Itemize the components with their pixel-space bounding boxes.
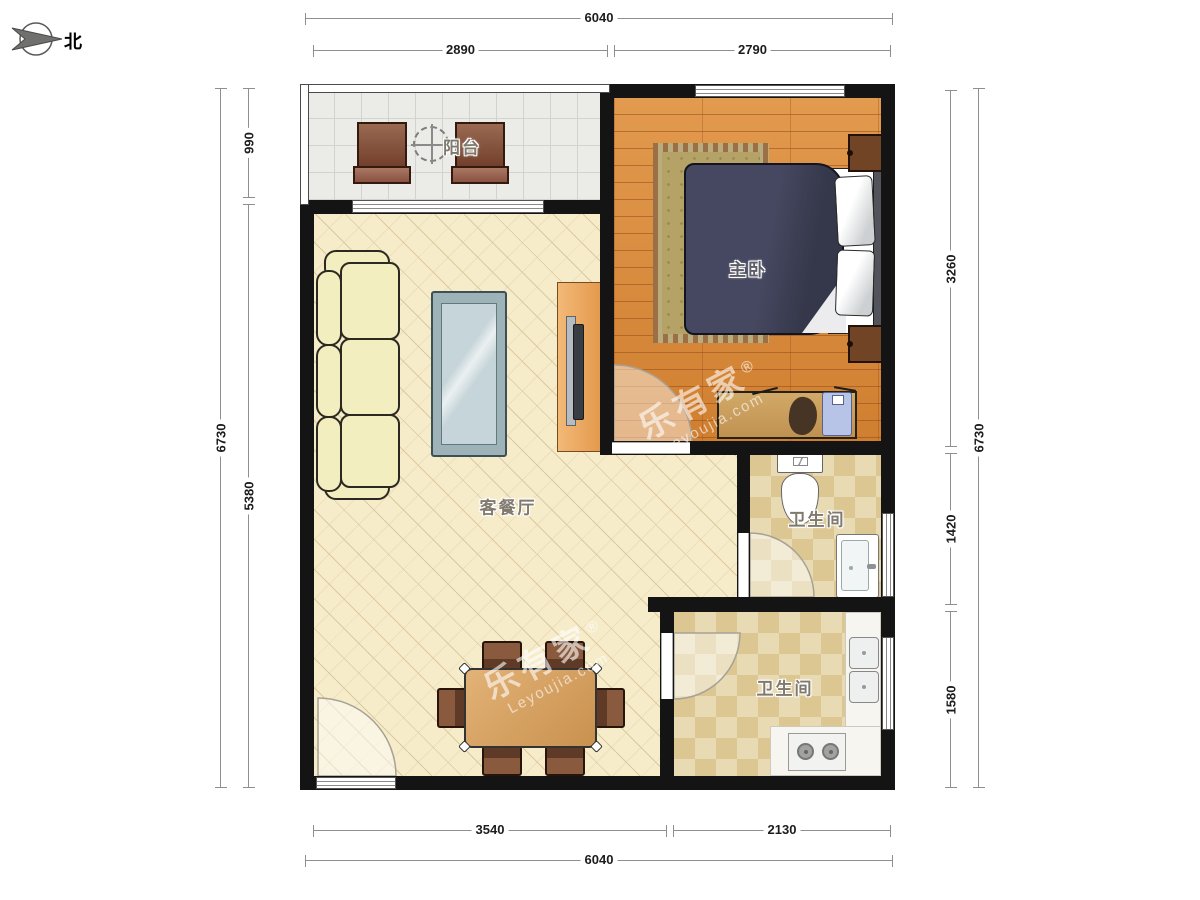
double-sink-basin [849, 671, 879, 703]
dim-bottom-total: 6040 [305, 860, 893, 861]
drain [849, 566, 853, 570]
bathroom2-window [882, 637, 894, 730]
dining-chair [545, 746, 585, 776]
bedroom-door-threshold [612, 442, 690, 454]
north-label: 北 [64, 28, 82, 54]
dining-chair [482, 641, 522, 671]
sofa [316, 250, 402, 500]
dim-left-balcony: 990 [248, 88, 249, 198]
bathroom2-label: 卫生间 [757, 675, 814, 700]
dim-right-total: 6730 [978, 88, 979, 788]
master-bedroom-label: 主卧 [729, 256, 767, 281]
floor-plan: 阳台 主卧 客餐厅 卫生间 卫生间 乐有家® Leyoujia.com 乐有家®… [0, 0, 1200, 900]
balcony-label: 阳台 [443, 134, 481, 159]
balcony-chair-seat [353, 166, 411, 184]
pillow [834, 175, 876, 247]
dining-chair [482, 746, 522, 776]
dim-left-living: 5380 [248, 204, 249, 788]
dining-chair [595, 688, 625, 728]
dim-right-bedroom: 3260 [950, 90, 951, 447]
bathroom1-sink [836, 534, 879, 598]
balcony-railing [300, 84, 309, 205]
bedroom-window [695, 85, 845, 97]
bathroom2-door-arc [674, 633, 740, 699]
faucet [867, 564, 876, 569]
dining-chair [437, 688, 467, 728]
balcony-railing [300, 84, 610, 93]
bathroom1-door-arc [750, 533, 814, 597]
entry-door-threshold [316, 777, 396, 789]
bedroom-door-arc [614, 365, 692, 443]
entry-door-arc [318, 698, 396, 776]
sofa-cushion [340, 338, 400, 416]
dining-table [464, 668, 597, 748]
stove-burner [797, 743, 814, 760]
compass-north: 北 [8, 18, 138, 64]
coffee-table [431, 291, 507, 457]
coffee-table-glass [441, 303, 497, 445]
bathroom1-door-threshold [738, 533, 749, 597]
wall [600, 84, 614, 455]
wall [648, 597, 895, 612]
pillow [835, 249, 875, 316]
dim-left-total: 6730 [220, 88, 221, 788]
sink-basin [841, 540, 869, 591]
wall [300, 200, 314, 790]
balcony-chair-seat [451, 166, 509, 184]
living-dining-label: 客餐厅 [480, 494, 537, 519]
stove-burner [822, 743, 839, 760]
shirt-on-dresser [822, 392, 852, 436]
bathroom1-window [882, 513, 894, 597]
balcony-sliding-door [352, 200, 544, 213]
dining-chair [545, 641, 585, 671]
dim-right-bath1: 1420 [950, 453, 951, 605]
dim-top-bedroom: 2790 [614, 50, 891, 51]
dim-bottom-living: 3540 [313, 830, 667, 831]
nightstand [848, 325, 883, 363]
tv-screen [573, 324, 584, 420]
sofa-backrest [316, 416, 342, 492]
dim-right-bath2: 1580 [950, 611, 951, 788]
sofa-backrest [316, 344, 342, 418]
toilet-tank [777, 453, 823, 473]
nightstand [848, 134, 883, 172]
dim-top-total: 6040 [305, 18, 893, 19]
sofa-backrest [316, 270, 342, 346]
double-sink-basin [849, 637, 879, 669]
dim-bottom-bath2: 2130 [673, 830, 891, 831]
balcony-chair [357, 122, 407, 172]
bathroom1-label: 卫生间 [789, 506, 846, 531]
sofa-cushion [340, 414, 400, 488]
sofa-cushion [340, 262, 400, 340]
bathroom2-door-threshold [661, 633, 673, 699]
dim-top-balcony: 2890 [313, 50, 608, 51]
